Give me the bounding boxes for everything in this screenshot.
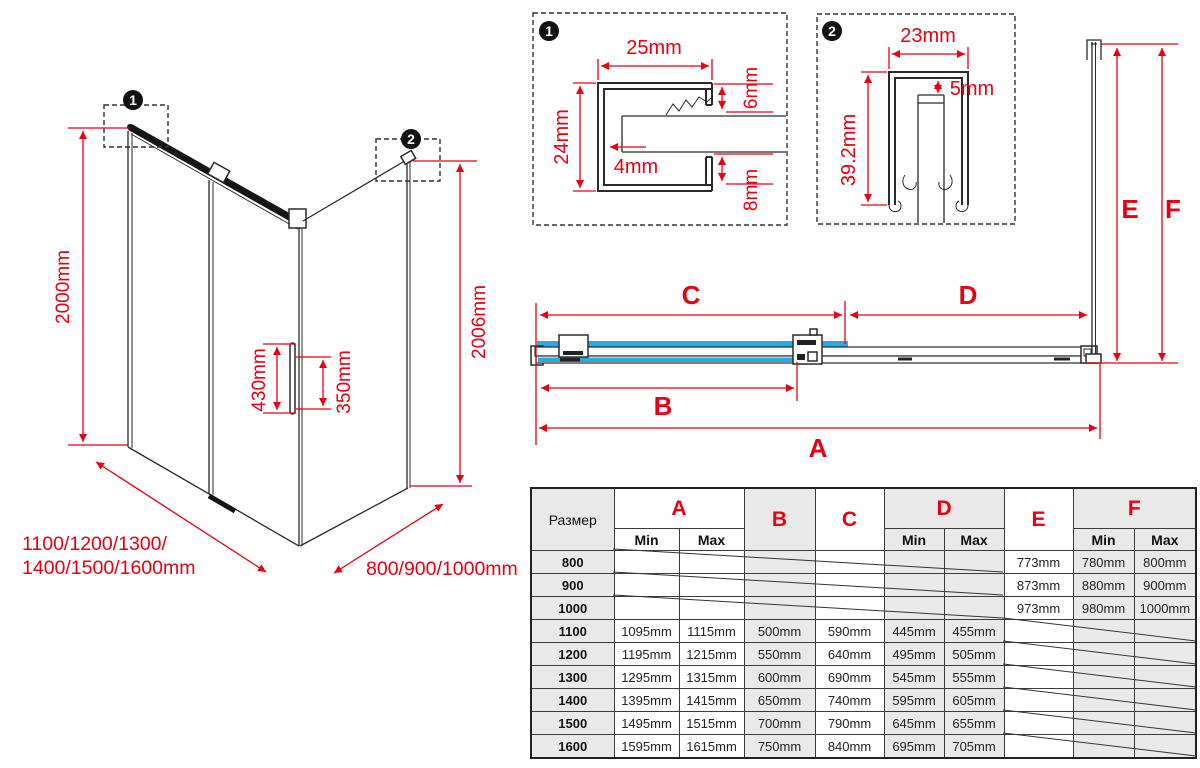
c-cell: 840mm [815, 735, 884, 759]
empty-cell [744, 574, 815, 597]
table-row: 1600 1595mm 1615mm 750mm 840mm 695mm 705… [531, 735, 1196, 759]
dim-e-label: E [1121, 194, 1138, 224]
b-cell: 500mm [744, 620, 815, 643]
detail-2-badge-number: 2 [828, 23, 836, 39]
profile-height-label-2: 39.2mm [838, 114, 860, 186]
d-min-cell: 595mm [884, 689, 944, 712]
table-row: 1400 1395mm 1415mm 650mm 740mm 595mm 605… [531, 689, 1196, 712]
d-max-cell: 605mm [944, 689, 1004, 712]
empty-cell [944, 574, 1004, 597]
empty-cell [815, 574, 884, 597]
col-header-f: F [1073, 488, 1196, 529]
empty-cell [1073, 620, 1134, 643]
size-cell: 1600 [531, 735, 614, 759]
b-cell: 600mm [744, 666, 815, 689]
handle-spacing-label: 350mm [334, 350, 355, 413]
f-min-cell: 980mm [1073, 597, 1134, 620]
glass-gap-label: 4mm [614, 156, 658, 178]
width-options-line2: 1400/1500/1600mm [22, 557, 195, 579]
empty-cell [744, 551, 815, 574]
size-cell: 1400 [531, 689, 614, 712]
bottom-lip-label: 8mm [741, 169, 762, 211]
badge-2-number: 2 [407, 131, 415, 147]
empty-cell [884, 574, 944, 597]
size-cell: 1500 [531, 712, 614, 735]
d-min-cell: 495mm [884, 643, 944, 666]
detail-view-1: 1 25mm 24mm 6mm 8mm 4mm [533, 13, 787, 225]
empty-cell [1134, 643, 1196, 666]
empty-cell [679, 597, 744, 620]
door-height-label: 2000mm [53, 250, 74, 324]
d-max-cell: 505mm [944, 643, 1004, 666]
detail-1-badge-number: 1 [545, 23, 553, 39]
width-options-line1: 1100/1200/1300/ [22, 533, 168, 555]
empty-cell [614, 597, 679, 620]
d-min-cell: 545mm [884, 666, 944, 689]
empty-cell [1004, 643, 1073, 666]
profile-height-label-1: 24mm [551, 109, 573, 165]
a-min-cell: 1395mm [614, 689, 679, 712]
empty-cell [815, 551, 884, 574]
c-cell: 640mm [815, 643, 884, 666]
b-cell: 700mm [744, 712, 815, 735]
size-cell: 1200 [531, 643, 614, 666]
c-cell: 790mm [815, 712, 884, 735]
empty-cell [744, 597, 815, 620]
empty-cell [1134, 666, 1196, 689]
a-min-cell: 1595mm [614, 735, 679, 759]
door-handle [290, 343, 295, 414]
f-max-cell: 1000mm [1134, 597, 1196, 620]
table-header-row: Размер A B C D E F [531, 488, 1196, 529]
c-cell: 690mm [815, 666, 884, 689]
a-min-cell: 1295mm [614, 666, 679, 689]
a-max-cell: 1615mm [679, 735, 744, 759]
handle-length-label: 430mm [249, 348, 270, 411]
d-max-cell: 555mm [944, 666, 1004, 689]
empty-cell [614, 574, 679, 597]
a-max-cell: 1115mm [679, 620, 744, 643]
wall-profile-top [1087, 40, 1101, 60]
a-max-cell: 1315mm [679, 666, 744, 689]
dim-a-label: A [809, 433, 828, 463]
empty-cell [884, 597, 944, 620]
table-row: 900 873mm 880mm 900mm [531, 574, 1196, 597]
d-max-cell: 655mm [944, 712, 1004, 735]
e-cell: 873mm [1004, 574, 1073, 597]
empty-cell [944, 597, 1004, 620]
empty-cell [1004, 689, 1073, 712]
empty-cell [1134, 620, 1196, 643]
dim-d-label: D [959, 280, 978, 310]
f-min-header: Min [1073, 529, 1134, 551]
b-cell: 750mm [744, 735, 815, 759]
size-cell: 1100 [531, 620, 614, 643]
empty-cell [1134, 735, 1196, 759]
d-max-header: Max [944, 529, 1004, 551]
a-max-header: Max [679, 529, 744, 551]
profile-width-label-2: 23mm [900, 25, 956, 47]
f-max-header: Max [1134, 529, 1196, 551]
empty-cell [1073, 643, 1134, 666]
table-row: 1500 1495mm 1515mm 700mm 790mm 645mm 655… [531, 712, 1196, 735]
empty-cell [1134, 689, 1196, 712]
f-min-cell: 780mm [1073, 551, 1134, 574]
empty-cell [1004, 666, 1073, 689]
technical-drawing-page: 1 2 2000mm 2006mm 430mm 350mm 1100/1200/… [0, 0, 1200, 768]
d-min-cell: 445mm [884, 620, 944, 643]
glass-panel-section-2 [918, 95, 944, 223]
a-max-cell: 1515mm [679, 712, 744, 735]
table-row: 1000 973mm 980mm 1000mm [531, 597, 1196, 620]
size-cell: 800 [531, 551, 614, 574]
col-header-a: A [614, 488, 744, 529]
d-min-cell: 695mm [884, 735, 944, 759]
table-row: 1300 1295mm 1315mm 600mm 690mm 545mm 555… [531, 666, 1196, 689]
size-cell: 1300 [531, 666, 614, 689]
size-table: Размер A B C D E F Min Max Min Max Min M… [530, 487, 1197, 759]
front-view-drawing: 1 2 2000mm 2006mm 430mm 350mm 1100/1200/… [22, 90, 518, 580]
col-header-e: E [1004, 488, 1073, 551]
empty-cell [1004, 620, 1073, 643]
empty-cell [944, 551, 1004, 574]
a-min-cell: 1195mm [614, 643, 679, 666]
top-gap-label: 5mm [950, 78, 994, 100]
empty-cell [1073, 666, 1134, 689]
plan-view-drawing: C D B A E F [531, 40, 1181, 463]
e-cell: 773mm [1004, 551, 1073, 574]
table-row: 1200 1195mm 1215mm 550mm 640mm 495mm 505… [531, 643, 1196, 666]
empty-cell [884, 551, 944, 574]
empty-cell [1073, 735, 1134, 759]
size-cell: 900 [531, 574, 614, 597]
empty-cell [614, 551, 679, 574]
f-max-cell: 800mm [1134, 551, 1196, 574]
b-cell: 550mm [744, 643, 815, 666]
col-header-d: D [884, 488, 1004, 529]
col-header-size: Размер [531, 488, 614, 551]
table-row: 1100 1095mm 1115mm 500mm 590mm 445mm 455… [531, 620, 1196, 643]
d-min-header: Min [884, 529, 944, 551]
f-max-cell: 900mm [1134, 574, 1196, 597]
col-header-b: B [744, 488, 815, 551]
dim-c-label: C [682, 280, 701, 310]
side-panel-height-label: 2006mm [469, 285, 490, 359]
bottom-guide [209, 496, 235, 511]
empty-cell [815, 597, 884, 620]
size-cell: 1000 [531, 597, 614, 620]
empty-cell [1004, 712, 1073, 735]
empty-cell [1004, 735, 1073, 759]
d-max-cell: 705mm [944, 735, 1004, 759]
d-min-cell: 645mm [884, 712, 944, 735]
d-max-cell: 455mm [944, 620, 1004, 643]
b-cell: 650mm [744, 689, 815, 712]
empty-cell [1073, 689, 1134, 712]
corner-bracket [289, 209, 306, 228]
bottom-seal-right [939, 175, 952, 190]
glass-panel-section [622, 116, 786, 152]
empty-cell [679, 574, 744, 597]
empty-cell [1134, 712, 1196, 735]
a-min-header: Min [614, 529, 679, 551]
e-cell: 973mm [1004, 597, 1073, 620]
detail-view-2: 2 23mm 5mm 39.2mm [817, 14, 1015, 224]
table-row: 800 773mm 780mm 800mm [531, 551, 1196, 574]
top-lip-label: 6mm [741, 67, 762, 109]
c-cell: 590mm [815, 620, 884, 643]
a-min-cell: 1495mm [614, 712, 679, 735]
a-max-cell: 1415mm [679, 689, 744, 712]
dim-b-label: B [654, 391, 673, 421]
empty-cell [679, 551, 744, 574]
depth-options-label: 800/900/1000mm [366, 558, 518, 580]
c-cell: 740mm [815, 689, 884, 712]
a-max-cell: 1215mm [679, 643, 744, 666]
a-min-cell: 1095mm [614, 620, 679, 643]
f-min-cell: 880mm [1073, 574, 1134, 597]
dim-f-label: F [1165, 194, 1181, 224]
bottom-seal-left [903, 175, 916, 190]
col-header-c: C [815, 488, 884, 551]
empty-cell [1073, 712, 1134, 735]
badge-1-number: 1 [129, 92, 137, 108]
profile-width-label-1: 25mm [626, 37, 682, 59]
